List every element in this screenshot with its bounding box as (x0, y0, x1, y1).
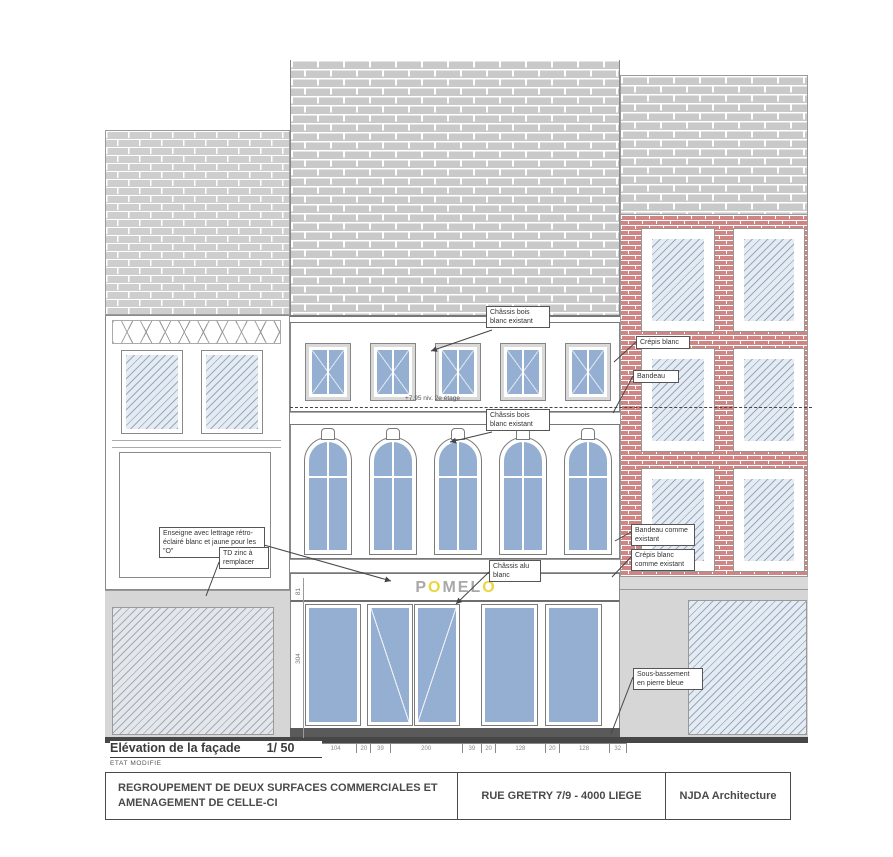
second-floor-window (370, 343, 416, 401)
annotation-chassis-alu: Châssis alu blanc (489, 560, 541, 582)
second-floor-window (435, 343, 481, 401)
right-building-window (733, 348, 805, 452)
view-title-label: Elévation de la façade (110, 741, 241, 755)
main-entablature (290, 558, 620, 574)
annotation-sous-bassement: Sous-bassement en pierre bleue (633, 668, 703, 690)
first-floor-arched-window (434, 437, 482, 555)
dimension-value: 32 (609, 744, 627, 753)
annotation-crepis-existant: Crépis blanc comme existant (631, 549, 695, 571)
right-building-window (641, 228, 715, 332)
dimension-value: 128 (559, 744, 609, 753)
view-scale: 1/ 50 (267, 741, 295, 755)
left-facade-window (201, 350, 263, 434)
sign-letter: O (428, 579, 442, 596)
sign-letter: M (442, 579, 457, 596)
annotation-bandeau: Bandeau (633, 370, 679, 383)
first-floor-arched-window (499, 437, 547, 555)
level-line-2e-etage (290, 407, 812, 408)
second-floor-window (305, 343, 351, 401)
storefront-door-leaf (414, 604, 460, 726)
main-sign-band: POMELO (290, 574, 620, 602)
second-floor-window (565, 343, 611, 401)
main-first-floor (290, 425, 620, 558)
left-facade-window (121, 350, 183, 434)
annotation-crepis-blanc: Crépis blanc (636, 336, 690, 349)
annotation-chassis-bois-1er: Châssis bois blanc existant (486, 409, 550, 431)
storefront-window (305, 604, 361, 726)
right-building-brick-top (620, 75, 808, 215)
right-building-window (733, 228, 805, 332)
storefront-door-leaf (367, 604, 413, 726)
vertical-dim-value: 81 (295, 588, 302, 595)
annotation-chassis-bois-2e: Châssis bois blanc existant (486, 306, 550, 328)
view-title: Elévation de la façade 1/ 50 (110, 741, 322, 758)
left-garage-door (112, 607, 274, 735)
annotation-bandeau-existant: Bandeau comme existant (631, 524, 695, 546)
dimension-chain: 53104203920039201282012832 (290, 743, 627, 757)
right-building-window (733, 468, 805, 572)
vertical-dim-value: 304 (295, 653, 302, 664)
main-cornice (290, 315, 620, 323)
right-building-ground-wall (620, 590, 808, 737)
right-building-window (641, 348, 715, 452)
main-bandeau (290, 411, 620, 425)
elevation-drawing: +7.95 niv. 2e étage POMELO 81 304 (0, 0, 893, 857)
sign-letter: E (458, 579, 471, 596)
level-label: +7.95 niv. 2e étage (405, 395, 460, 402)
sign-letter: L (470, 579, 482, 596)
state-label: ETAT MODIFIE (110, 760, 162, 767)
architecture-firm: NJDA Architecture (666, 773, 790, 819)
project-address: RUE GRETRY 7/9 - 4000 LIEGE (458, 773, 666, 819)
sign-letter: P (415, 579, 428, 596)
dimension-value: 200 (390, 744, 462, 753)
dimension-value: 39 (462, 744, 482, 753)
main-building-brick-gable (290, 60, 620, 315)
dimension-value: 20 (356, 744, 370, 753)
left-facade-frieze (112, 320, 281, 344)
second-floor-window (500, 343, 546, 401)
main-storefront (290, 602, 620, 728)
left-facade-band (112, 440, 281, 448)
first-floor-arched-window (304, 437, 352, 555)
vertical-dim-line (303, 578, 304, 738)
first-floor-arched-window (369, 437, 417, 555)
project-title: REGROUPEMENT DE DEUX SURFACES COMMERCIAL… (106, 773, 458, 819)
storefront-window (545, 604, 602, 726)
dimension-value: 20 (481, 744, 495, 753)
dimension-value: 39 (370, 744, 390, 753)
left-building-ground-wall (105, 590, 290, 737)
storefront-window (481, 604, 538, 726)
dimension-value: 128 (495, 744, 545, 753)
dimension-value: 20 (545, 744, 559, 753)
annotation-td-zinc: TD zinc à remplacer (219, 547, 269, 569)
right-building-bandeau-strip (620, 576, 808, 590)
left-building-brick-wall (105, 130, 290, 315)
title-block: REGROUPEMENT DE DEUX SURFACES COMMERCIAL… (105, 772, 791, 820)
right-ground-panel (688, 600, 807, 735)
storefront-base-sill (290, 728, 620, 737)
first-floor-arched-window (564, 437, 612, 555)
right-building-red-brick-facade (620, 215, 808, 576)
